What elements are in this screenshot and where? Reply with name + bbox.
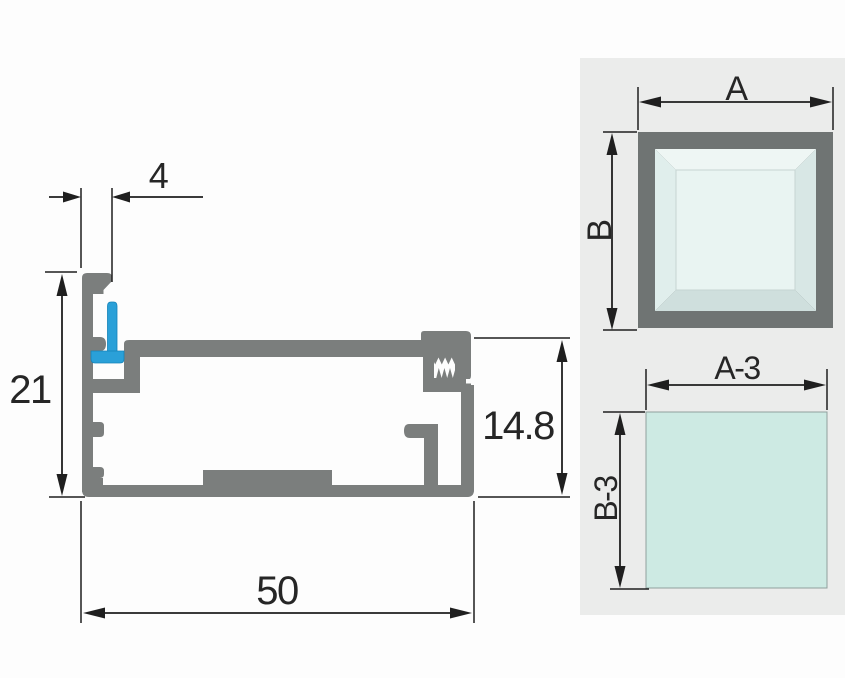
- gasket-base: [91, 351, 124, 363]
- arrowhead: [83, 608, 105, 619]
- dim-label-fin-height: 21: [9, 368, 51, 412]
- dimension-21: 21: [9, 272, 85, 497]
- arrowhead: [57, 274, 68, 296]
- dim-label-overall-width: 50: [256, 569, 298, 613]
- right-face-notch: [466, 379, 475, 384]
- glass-pane: [646, 412, 827, 588]
- bottom-wall-pad: [203, 470, 332, 486]
- arrowhead: [112, 192, 130, 203]
- dimension-50: 50: [81, 501, 474, 623]
- dim-label-B-3: B-3: [588, 476, 624, 522]
- dim-label-pocket-height: 14.8: [482, 404, 554, 448]
- profile-right-wall: [461, 385, 474, 497]
- technical-drawing-svg: A B A-3: [0, 0, 845, 678]
- size-reference-panel: A B A-3: [580, 58, 845, 615]
- dim-label-B: B: [581, 220, 619, 241]
- aluminum-profile-cross-section: [82, 273, 475, 497]
- internal-hook-rib: [404, 424, 438, 486]
- glass-bevel-bottom: [655, 290, 816, 311]
- glass-bevel-left: [655, 149, 676, 311]
- glass-bevel-top: [655, 149, 816, 170]
- profile-top-wall: [84, 340, 468, 393]
- profile-bottom-wall: [82, 485, 474, 497]
- left-wall-clip-tooth: [93, 422, 104, 437]
- arrowhead: [450, 608, 472, 619]
- dim-label-A: A: [725, 70, 748, 108]
- arrowhead: [557, 340, 568, 362]
- bottom-wall-pad-left: [82, 478, 103, 486]
- arrowhead: [557, 473, 568, 495]
- serration-teeth-upper: [433, 356, 458, 365]
- dimension-14-8: 14.8: [474, 338, 570, 497]
- dim-label-groove-width: 4: [149, 155, 168, 196]
- arrowhead: [63, 192, 81, 203]
- glazing-gasket: [91, 302, 124, 363]
- dim-label-A-3: A-3: [714, 350, 760, 386]
- gasket-stem: [108, 302, 118, 353]
- glass-bevel-right: [795, 149, 816, 311]
- arrowhead: [57, 474, 68, 496]
- technical-drawing-canvas: A B A-3: [0, 0, 845, 678]
- dimension-4: 4: [49, 155, 203, 282]
- glass-center-pane: [676, 170, 795, 290]
- left-wall-clip-tooth: [93, 467, 104, 478]
